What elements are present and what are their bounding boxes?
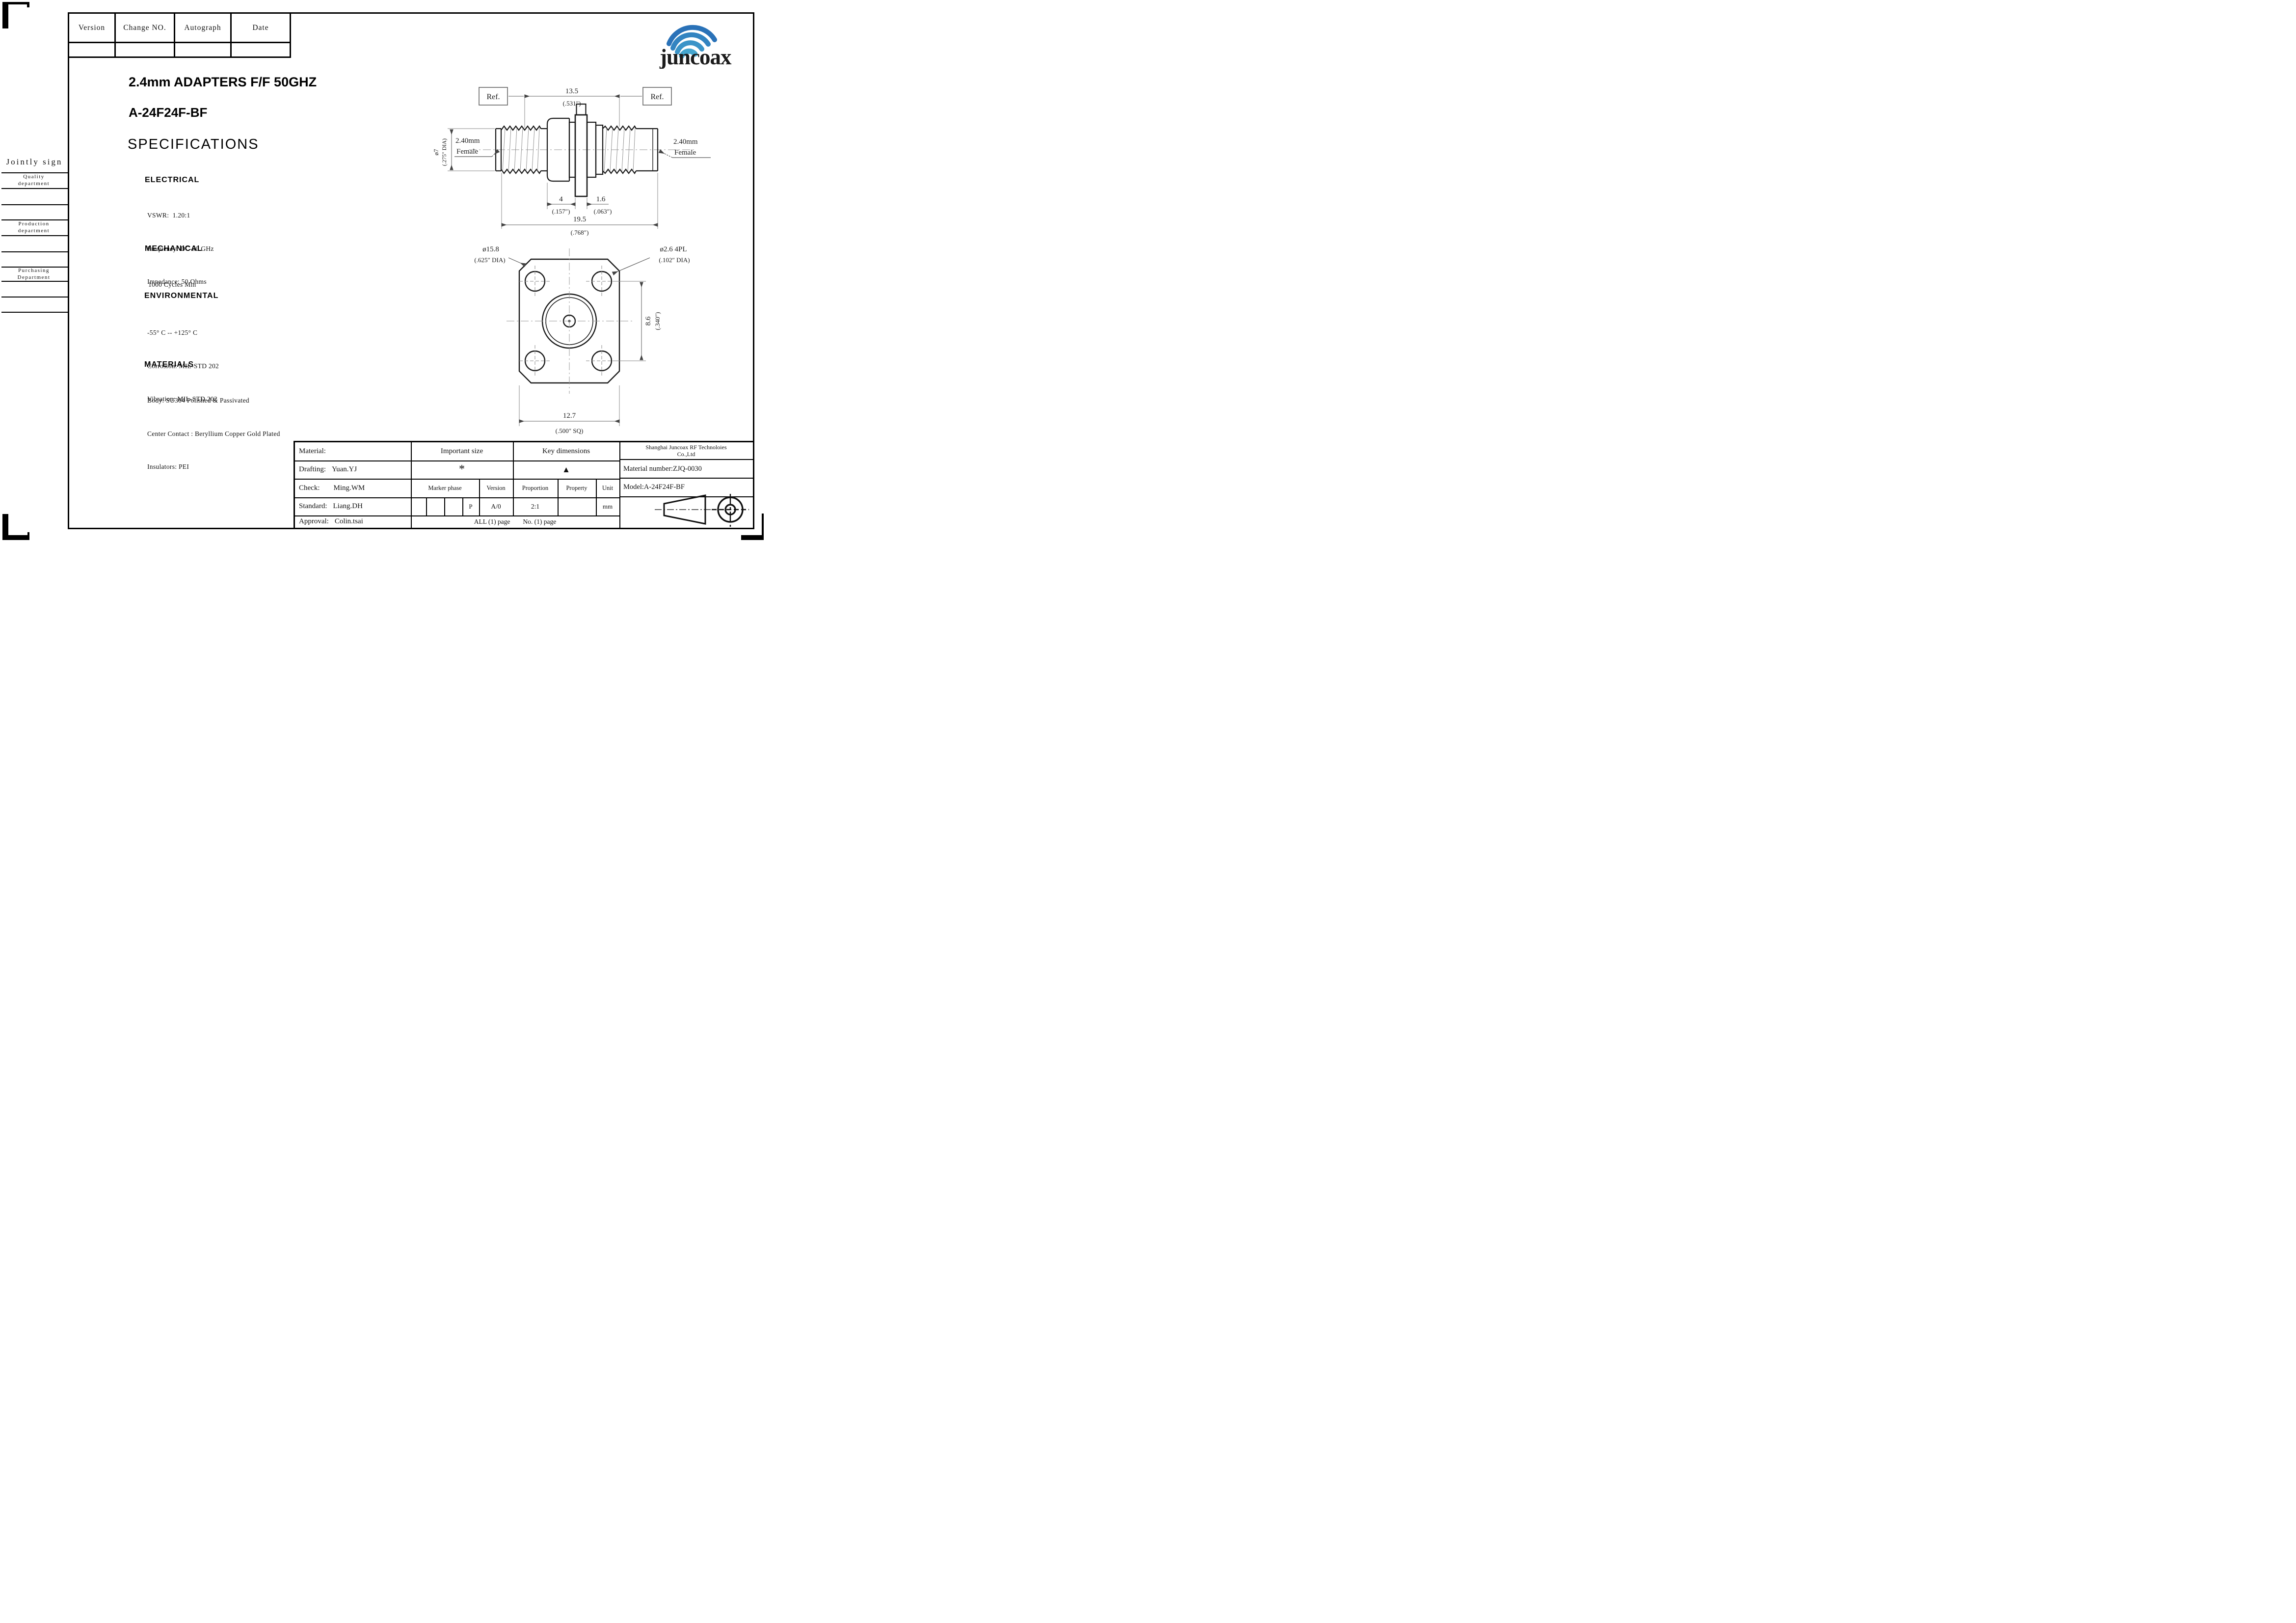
electrical-heading: ELECTRICAL: [145, 176, 199, 185]
grid-line: [426, 497, 427, 515]
port-left-gender: Female: [456, 148, 478, 156]
pages-cell: ALL (1) page No. (1) page: [411, 515, 619, 528]
phase-p-cell: P: [462, 497, 479, 515]
corner-mark-top-left-tick: [27, 2, 29, 7]
port-right-gender: Female: [674, 149, 696, 157]
revision-empty-cell: [69, 43, 116, 58]
materials-heading: MATERIALS: [144, 360, 194, 369]
key-dimensions-header: Key dimensions: [513, 442, 619, 460]
port-label-left: 2.40mm Female: [454, 137, 498, 157]
dia7-label: ø7: [432, 149, 440, 156]
projection-symbol: [619, 494, 753, 528]
spec-line: Center Contact : Beryllium Copper Gold P…: [147, 429, 280, 440]
approval-row: Approval: Colin.tsai: [299, 515, 407, 528]
dim-13-5-inch: (.531″): [563, 100, 581, 107]
materials-lines: Body: SU304 Polished & Passivated Center…: [147, 373, 280, 495]
dim-4-inch: (.157″): [552, 208, 570, 215]
specifications-heading: SPECIFICATIONS: [128, 136, 259, 153]
standard-row: Standard: Liang.DH: [299, 497, 407, 515]
revision-header-version: Version: [69, 14, 116, 43]
front-view: ø15.8 (.625″ DIA) ø2.6 4PL (.102″ DIA) 8…: [474, 245, 690, 434]
spec-line: -55° C -- +125° C: [147, 327, 219, 339]
port-right-size: 2.40mm: [673, 138, 698, 146]
mechanical-heading: MECHANICAL: [145, 244, 203, 253]
corner-mark-top-left-v: [2, 2, 8, 28]
divider-line: [1, 235, 68, 236]
dia-2-6: ø2.6 4PL: [660, 245, 687, 253]
check-value: Ming.WM: [334, 484, 365, 492]
revision-header-date: Date: [232, 14, 291, 43]
version-header: Version: [479, 479, 513, 497]
ref-right-label: Ref.: [650, 93, 664, 101]
ref-left-label: Ref.: [486, 93, 500, 101]
revision-header-change-no: Change NO.: [116, 14, 175, 43]
company-line1: Shanghai Juncoax RF Technoloies: [645, 444, 726, 451]
proportion-value: 2:1: [513, 497, 558, 515]
drafting-row: Drafting: Yuan.YJ: [299, 460, 407, 479]
dim-1-6-inch: (.063″): [594, 208, 612, 215]
side-view: Ref. Ref. 13.5 (.531″) ø7 (.275″ DIA): [432, 87, 711, 236]
center-nut-and-flange: [547, 104, 603, 196]
dia-2-6-inch: (.102″ DIA): [659, 256, 690, 264]
environmental-heading: ENVIRONMENTAL: [144, 292, 218, 300]
spec-line: 1000 Cycles Min: [148, 279, 196, 291]
view-centerlines: [507, 248, 632, 394]
divider-line: [1, 204, 68, 205]
company-line2: Co.,Ltd: [677, 451, 695, 458]
dim-12-7-inch: (.500″ SQ): [556, 427, 584, 434]
corner-mark-bottom-right-h: [741, 535, 764, 540]
dept-line: department: [0, 227, 68, 234]
spec-line: Body: SU304 Polished & Passivated: [147, 395, 280, 406]
grid-line: [444, 497, 445, 515]
marker-phase-header: Marker phase: [411, 479, 479, 497]
dim-8-6-inch: (.340″): [654, 312, 661, 330]
dim-8-6: 8.6: [644, 316, 652, 325]
dim-12-7: 12.7: [563, 412, 576, 420]
company-name: Shanghai Juncoax RF Technoloies Co.,Ltd: [619, 442, 753, 459]
dia7-inch-label: (.275″ DIA): [442, 138, 448, 166]
approval-label: Approval:: [299, 517, 329, 526]
spec-line: Insulators: PEI: [147, 461, 280, 473]
juncoax-logo: juncoax: [659, 14, 757, 69]
logo-wordmark: juncoax: [659, 45, 732, 69]
pages-all: ALL (1) page: [474, 518, 510, 526]
nut-flange-dimensions: 4 (.157″) 1.6 (.063″): [547, 183, 612, 215]
dia-15-8: ø15.8: [482, 245, 499, 253]
dept-line: Production: [0, 220, 68, 227]
revision-empty-cell: [175, 43, 232, 58]
technical-drawing: Ref. Ref. 13.5 (.531″) ø7 (.275″ DIA): [422, 81, 712, 439]
dim-19-5-inch: (.768″): [571, 229, 589, 236]
version-value: A/0: [479, 497, 513, 515]
dept-line: Department: [0, 274, 68, 281]
title-block: Material: Important size Key dimensions …: [294, 441, 754, 529]
unit-value: mm: [596, 497, 619, 515]
divider-line: [1, 312, 68, 313]
key-dimensions-mark: ▲: [513, 460, 619, 479]
revision-table: Version Change NO. Autograph Date: [69, 14, 291, 58]
unit-header: Unit: [596, 479, 619, 497]
spec-sheet-page: Version Change NO. Autograph Date Jointl…: [0, 0, 765, 541]
important-size-header: Important size: [411, 442, 513, 460]
sidebar-production-department: Production department: [0, 220, 68, 234]
divider-line: [1, 188, 68, 189]
page-title: 2.4mm ADAPTERS F/F 50GHZ: [129, 75, 317, 90]
approval-value: Colin.tsai: [335, 517, 363, 526]
pages-no: No. (1) page: [523, 518, 556, 526]
dim-13-5: 13.5: [565, 87, 578, 95]
flange-diameter-label: ø15.8 (.625″ DIA): [474, 245, 525, 265]
spec-line: VSWR: 1.20:1: [147, 210, 214, 221]
revision-header-autograph: Autograph: [175, 14, 232, 43]
drafting-label: Drafting:: [299, 465, 326, 474]
dim-4: 4: [559, 195, 563, 203]
revision-empty-cell: [116, 43, 175, 58]
material-number: Material number:ZJQ-0030: [623, 460, 751, 478]
check-label: Check:: [299, 484, 320, 492]
hole-diameter-label: ø2.6 4PL (.102″ DIA): [613, 245, 690, 273]
dept-line: Quality: [0, 173, 68, 180]
standard-value: Liang.DH: [333, 502, 363, 511]
corner-mark-bottom-left-h: [2, 535, 29, 540]
proportion-header: Proportion: [513, 479, 558, 497]
check-row: Check: Ming.WM: [299, 479, 407, 497]
port-label-right: 2.40mm Female: [660, 138, 711, 158]
revision-empty-cell: [232, 43, 291, 58]
dept-line: department: [0, 180, 68, 187]
model-title: A-24F24F-BF: [129, 105, 207, 120]
important-size-mark: *: [411, 460, 513, 479]
dim-19-5: 19.5: [573, 216, 586, 223]
divider-line: [1, 297, 68, 298]
property-header: Property: [558, 479, 596, 497]
dim-1-6: 1.6: [596, 195, 606, 203]
mechanical-lines: 1000 Cycles Min: [148, 257, 196, 313]
divider-line: [1, 251, 68, 252]
drafting-value: Yuan.YJ: [332, 465, 357, 474]
sidebar-purchasing-department: Purchasing Department: [0, 267, 68, 281]
corner-mark-bottom-left-tick: [27, 532, 29, 535]
corner-mark-top-left-h: [2, 2, 29, 4]
material-label: Material:: [299, 442, 407, 460]
dia-15-8-inch: (.625″ DIA): [474, 256, 505, 264]
port-left-size: 2.40mm: [455, 137, 480, 145]
total-length-dimension: 19.5 (.768″): [502, 173, 658, 236]
standard-label: Standard:: [299, 502, 327, 511]
sidebar-quality-department: Quality department: [0, 173, 68, 187]
divider-line: [1, 281, 68, 282]
jointly-sign-title: Jointly sign: [1, 157, 68, 167]
dept-line: Purchasing: [0, 267, 68, 274]
